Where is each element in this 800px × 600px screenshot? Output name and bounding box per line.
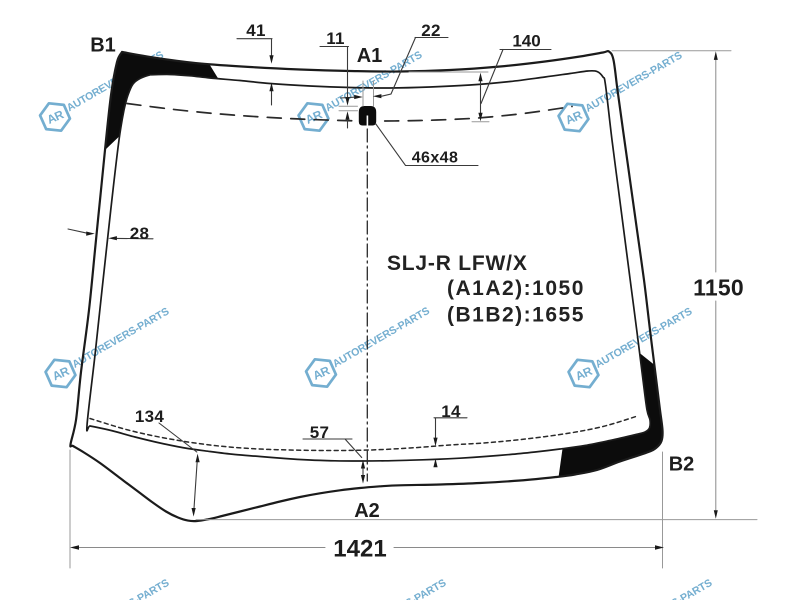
- svg-text:SLJ-R LFW/X: SLJ-R LFW/X: [387, 252, 528, 275]
- svg-text:B1: B1: [90, 35, 116, 57]
- svg-text:22: 22: [421, 21, 441, 40]
- svg-text:A1: A1: [357, 45, 383, 67]
- svg-text:1421: 1421: [333, 536, 386, 563]
- svg-text:46x48: 46x48: [412, 150, 459, 167]
- svg-text:1150: 1150: [693, 275, 744, 301]
- svg-text:B2: B2: [669, 454, 695, 476]
- svg-text:41: 41: [246, 21, 266, 40]
- svg-text:57: 57: [310, 423, 330, 442]
- svg-text:14: 14: [441, 402, 461, 421]
- svg-text:(B1B2):1655: (B1B2):1655: [447, 304, 585, 327]
- svg-text:28: 28: [130, 224, 150, 243]
- svg-text:134: 134: [135, 407, 165, 426]
- svg-text:A2: A2: [354, 500, 380, 522]
- svg-text:140: 140: [512, 32, 540, 51]
- svg-text:(A1A2):1050: (A1A2):1050: [447, 277, 585, 300]
- svg-text:11: 11: [326, 29, 345, 48]
